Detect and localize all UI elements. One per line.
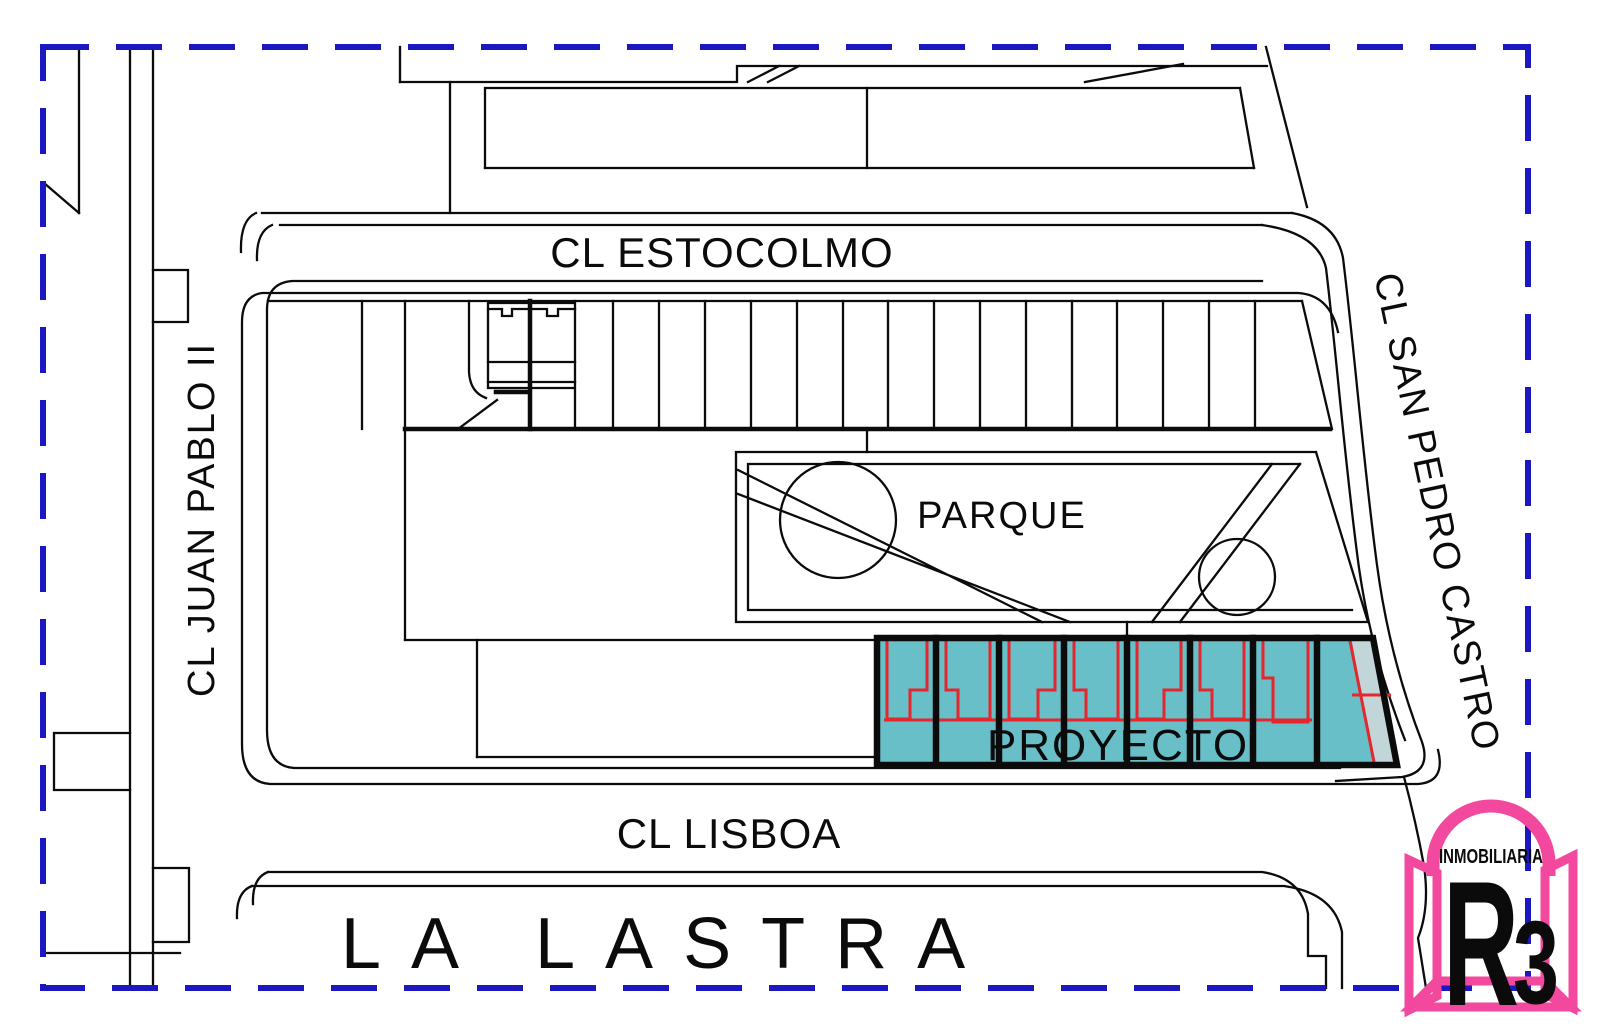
r3-inmobiliaria-logo: INMOBILIARIA R 3: [1409, 806, 1573, 1031]
street-label-lisboa: CL LISBOA: [617, 810, 842, 857]
map-line: [237, 886, 252, 918]
park-label: PARQUE: [917, 495, 1087, 537]
map-line: [54, 733, 130, 790]
park-outline: [736, 452, 1368, 622]
map-line: [153, 868, 189, 942]
map-line: [613, 301, 1255, 429]
site-plan-page: CL ESTOCOLMO CL LISBOA CL JUAN PABLO II …: [0, 0, 1600, 1031]
map-line: [257, 225, 272, 260]
park-outline-inner: [748, 464, 1352, 610]
map-line: [485, 88, 1240, 168]
building-detail: [469, 301, 486, 398]
map-line: [400, 66, 1267, 82]
logo-mark-r: R: [1443, 844, 1519, 1031]
logo-mark-3: 3: [1513, 897, 1559, 1029]
project-label: PROYECTO: [987, 721, 1249, 770]
park-path: [1152, 464, 1300, 622]
building-detail: [496, 301, 530, 429]
street-label-juan-pablo: CL JUAN PABLO II: [181, 342, 223, 697]
street-label-san-pedro: CL SAN PEDRO CASTRO: [1365, 269, 1508, 756]
map-line: [241, 213, 256, 252]
tree-circle: [1199, 539, 1275, 615]
street-label-estocolmo: CL ESTOCOLMO: [550, 229, 893, 276]
map-line: [1240, 88, 1254, 168]
district-label: LA LASTRA: [341, 904, 995, 984]
park-area: [736, 452, 1368, 622]
map-line: [44, 183, 79, 213]
map-line: [253, 872, 268, 904]
map-line: [1302, 301, 1332, 429]
building-detail: [458, 400, 497, 429]
site-plan-map: CL ESTOCOLMO CL LISBOA CL JUAN PABLO II …: [0, 0, 1600, 1031]
map-line: [1266, 47, 1307, 207]
map-line: [153, 270, 188, 322]
